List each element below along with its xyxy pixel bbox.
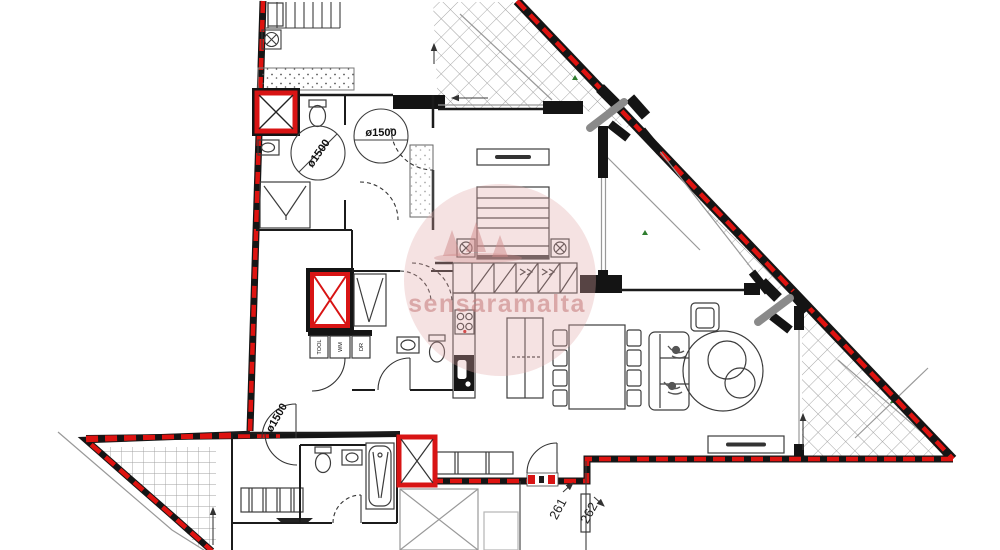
floor-plan-canvas: ø1500 ø1500 (0, 0, 1000, 550)
floor-plan-drawing: ø1500 ø1500 (0, 0, 1000, 550)
appliance-dr-label: DR (359, 343, 365, 351)
watermark-circle (404, 184, 596, 376)
shaft-top-left (252, 88, 300, 136)
landing-dotted-band (258, 68, 354, 90)
watermark: sensaramalta (404, 184, 596, 376)
hall-closet (410, 145, 433, 217)
appliance-tool-label: TOOL (317, 340, 323, 355)
wall-chunk (393, 95, 445, 109)
watermark-text: sensaramalta (408, 290, 586, 318)
shaft-laundry (306, 268, 354, 332)
lift-shaft (399, 437, 435, 485)
appliance-wm-label: WM (338, 342, 344, 352)
